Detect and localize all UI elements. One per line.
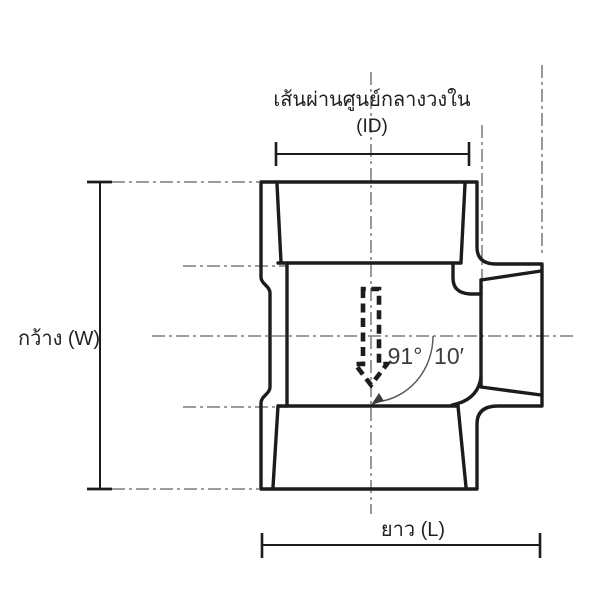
tee-fitting-drawing: 91° 10′ เส้นผ่านศูนย์กลางวงใน (ID) กว้าง… (0, 0, 600, 600)
angle-degrees-label: 91° (388, 343, 423, 369)
id-dimension (276, 142, 469, 166)
width-label: กว้าง (W) (18, 328, 100, 350)
technical-drawing-page: 91° 10′ เส้นผ่านศูนย์กลางวงใน (ID) กว้าง… (0, 0, 600, 600)
inner-diameter-symbol: (ID) (356, 116, 388, 137)
inner-diameter-title: เส้นผ่านศูนย์กลางวงใน (273, 88, 471, 112)
length-label: ยาว (L) (381, 519, 445, 541)
angle-minutes-label: 10′ (434, 343, 464, 369)
